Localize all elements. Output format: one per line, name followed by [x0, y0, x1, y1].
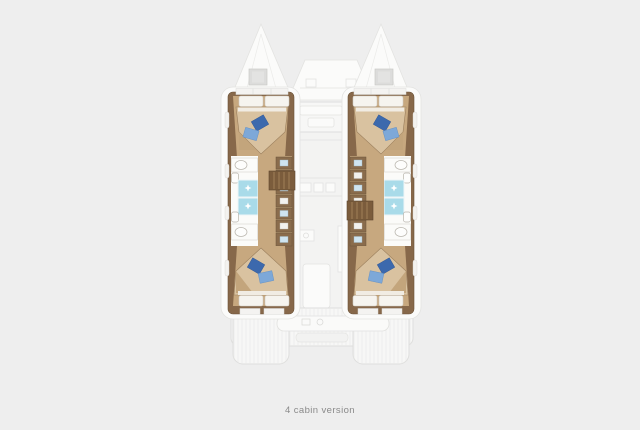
cockpit-recess [296, 333, 348, 342]
steps-right-hull [347, 201, 373, 220]
saloon-table [303, 264, 330, 308]
front-cockpit [296, 102, 346, 132]
steps-left-hull [269, 171, 295, 190]
floorplan-canvas: 4 cabin version [0, 0, 640, 430]
caption: 4 cabin version [0, 405, 640, 416]
catamaran-floorplan [0, 0, 640, 430]
